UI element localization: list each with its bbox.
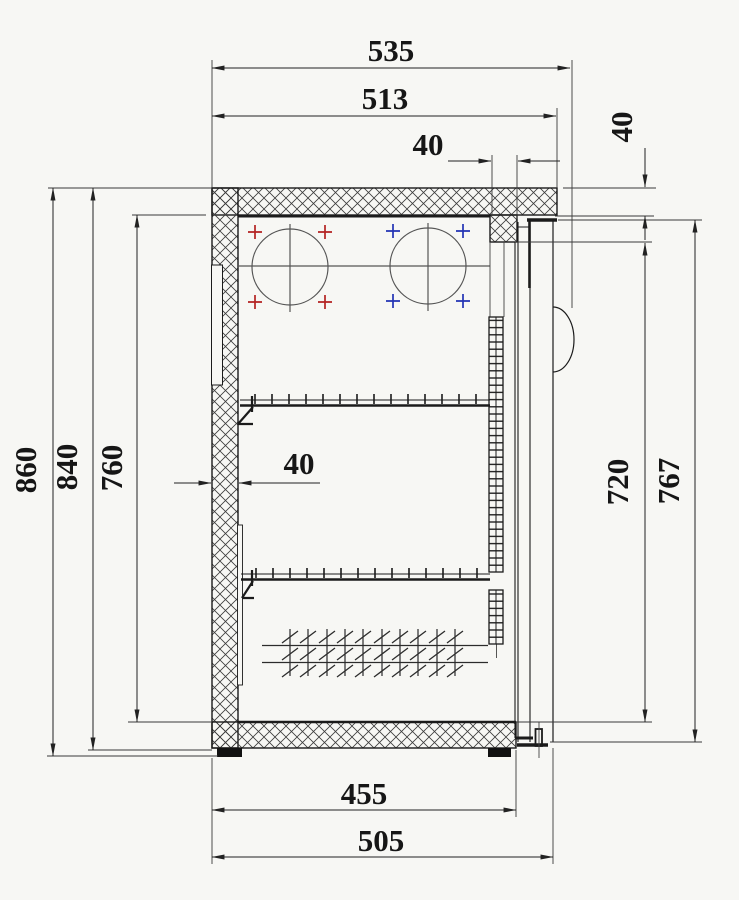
top-wall-hatched	[212, 188, 557, 215]
dim-767-label: 767	[651, 458, 686, 505]
dim-455-label: 455	[341, 776, 388, 811]
shelf-lower	[241, 568, 490, 598]
coil-columns	[290, 629, 455, 676]
shelf-upper-ticks	[255, 394, 476, 404]
dim-40-wall-label: 40	[284, 446, 315, 481]
dim-40-top-label: 40	[413, 127, 444, 162]
dim-513-label: 513	[362, 81, 409, 116]
dim-720-label: 720	[600, 459, 635, 506]
technical-drawing-sheet: 535 513 40 40 860 840 760 40 720 767 455…	[0, 0, 739, 900]
cabinet-structure	[212, 188, 558, 757]
cabinet-section-drawing: 535 513 40 40 860 840 760 40 720 767 455…	[0, 0, 739, 900]
dim-535-label: 535	[368, 33, 415, 68]
dim-505-label: 505	[358, 823, 405, 858]
shelf-lower-ticks	[256, 568, 477, 578]
coil-hatch-slashes	[282, 631, 463, 677]
top-corner-block-hatched	[490, 215, 517, 242]
condenser-coil	[262, 629, 488, 677]
front-foot	[217, 748, 242, 757]
rear-foot	[488, 748, 511, 757]
dim-860-label: 860	[8, 447, 43, 494]
left-wall-panel-lower	[238, 525, 243, 685]
dim-40-right-label: 40	[604, 112, 639, 143]
fan-assembly	[238, 223, 490, 312]
door-assembly	[489, 219, 574, 758]
shelf-upper	[238, 394, 490, 424]
door-handle-arc	[553, 307, 574, 372]
dim-840-label: 840	[49, 444, 84, 491]
left-wall-panel-upper	[212, 265, 223, 385]
bottom-wall-hatched	[212, 722, 516, 748]
dim-760-label: 760	[94, 445, 129, 492]
